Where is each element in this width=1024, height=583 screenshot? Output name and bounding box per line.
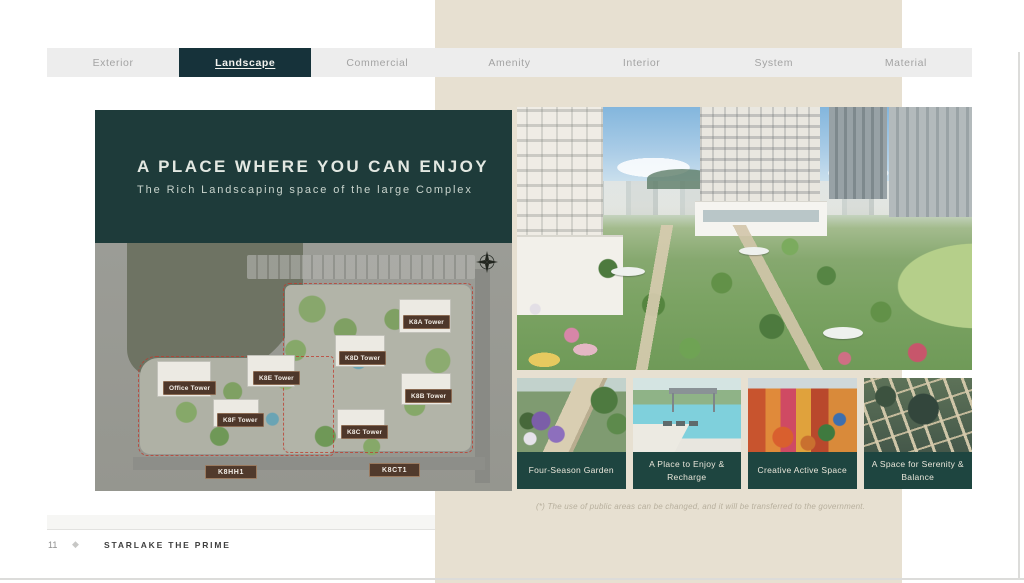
landscape-panel: A PLACE WHERE YOU CAN ENJOY The Rich Lan… — [95, 110, 512, 491]
tab-system[interactable]: System — [708, 48, 840, 77]
slide-page: Exterior Landscape Commercial Amenity In… — [0, 0, 1024, 583]
map-label-office-tower: Office Tower — [163, 381, 216, 395]
thumbnail-caption: A Place to Enjoy & Recharge — [633, 452, 742, 489]
tab-label: Commercial — [346, 57, 408, 69]
tab-material[interactable]: Material — [840, 48, 972, 77]
map-label-k8a-tower: K8A Tower — [403, 315, 450, 329]
page-subtitle: The Rich Landscaping space of the large … — [137, 184, 473, 196]
render-canopy — [823, 327, 863, 339]
map-label-k8b-tower: K8B Tower — [405, 389, 452, 403]
tab-label: Exterior — [93, 57, 134, 69]
tab-label: Landscape — [215, 57, 275, 69]
footer-divider — [47, 515, 435, 530]
tab-label: Material — [885, 57, 927, 69]
thumbnail-image — [517, 378, 626, 452]
thumbnail-four-season-garden: Four-Season Garden — [517, 378, 626, 489]
tab-interior[interactable]: Interior — [576, 48, 708, 77]
render-canopy — [611, 267, 645, 276]
main-render-image — [517, 107, 972, 370]
tab-label: Amenity — [488, 57, 530, 69]
render-canopy — [739, 247, 769, 255]
map-label-k8e-tower: K8E Tower — [253, 371, 300, 385]
map-road — [475, 269, 490, 483]
slide-bottom-edge — [0, 578, 1024, 580]
pool-steps — [663, 421, 702, 426]
page-title: A PLACE WHERE YOU CAN ENJOY — [137, 157, 489, 177]
render-tower — [829, 107, 887, 199]
map-zone-k8hh1: K8HH1 — [205, 465, 257, 479]
diamond-icon: ◆ — [72, 539, 79, 550]
tab-label: Interior — [623, 57, 660, 69]
render-tower — [700, 107, 820, 205]
pool-deck — [633, 424, 689, 452]
tab-exterior[interactable]: Exterior — [47, 48, 179, 77]
hero-header: A PLACE WHERE YOU CAN ENJOY The Rich Lan… — [95, 110, 512, 243]
tab-landscape[interactable]: Landscape — [179, 48, 311, 77]
master-plan-map: Office Tower K8E Tower K8F Tower K8A Tow… — [95, 243, 512, 491]
thumbnail-caption: Four-Season Garden — [517, 452, 626, 489]
brand-name: STARLAKE THE PRIME — [104, 540, 231, 550]
map-parking-strip — [247, 255, 475, 279]
map-label-k8f-tower: K8F Tower — [217, 413, 264, 427]
thumbnail-creative-active-space: Creative Active Space — [748, 378, 857, 489]
amenity-thumbnails: Four-Season Garden A Place to Enjoy & Re… — [517, 378, 972, 489]
thumbnail-serenity-balance: A Space for Serenity & Balance — [864, 378, 973, 489]
page-number: 11 — [48, 540, 57, 550]
compass-rose-icon — [476, 251, 498, 273]
thumbnail-image — [633, 378, 742, 452]
tab-label: System — [754, 57, 793, 69]
tab-commercial[interactable]: Commercial — [311, 48, 443, 77]
thumbnail-caption: A Space for Serenity & Balance — [864, 452, 973, 489]
map-road — [133, 457, 485, 470]
section-tabbar: Exterior Landscape Commercial Amenity In… — [47, 48, 972, 77]
thumbnail-image — [748, 378, 857, 452]
render-tower — [889, 107, 972, 217]
slide-right-edge — [1018, 52, 1020, 580]
pergola — [669, 388, 717, 394]
tab-amenity[interactable]: Amenity — [443, 48, 575, 77]
footnote-text: (*) The use of public areas can be chang… — [536, 502, 865, 511]
map-zone-k8ct1: K8CT1 — [369, 463, 420, 477]
pergola-post — [713, 393, 715, 412]
map-label-k8d-tower: K8D Tower — [339, 351, 386, 365]
pergola-post — [672, 393, 674, 412]
thumbnail-caption: Creative Active Space — [748, 452, 857, 489]
map-label-k8c-tower: K8C Tower — [341, 425, 388, 439]
thumbnail-image — [864, 378, 973, 452]
thumbnail-enjoy-recharge: A Place to Enjoy & Recharge — [633, 378, 742, 489]
